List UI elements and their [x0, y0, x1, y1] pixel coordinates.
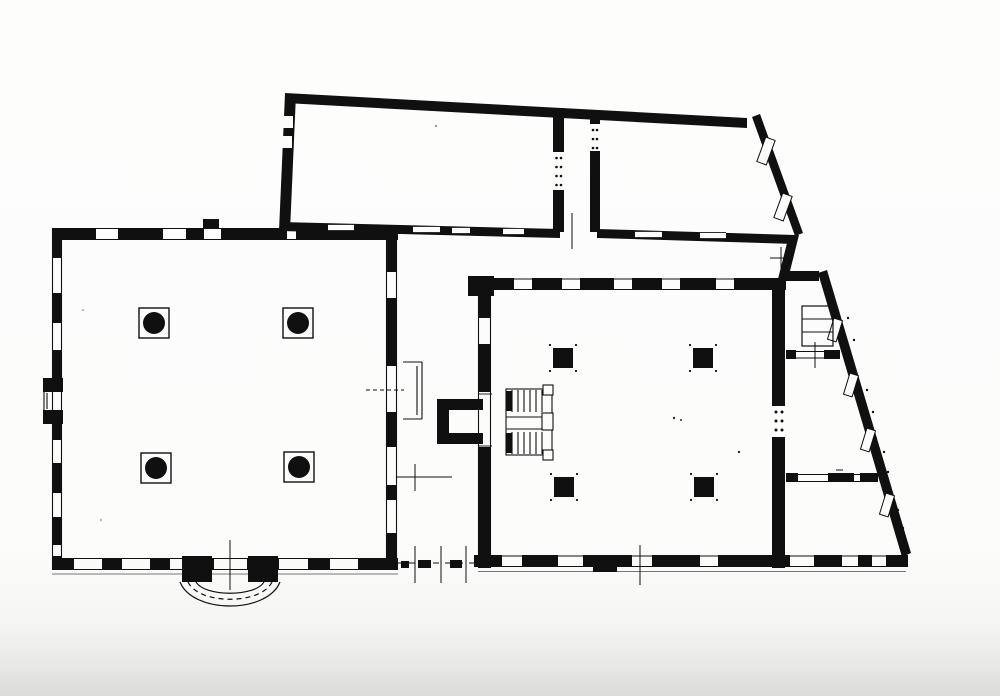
entrance-steps	[180, 540, 280, 606]
south-passage	[397, 546, 478, 583]
floor-plan-canvas	[0, 0, 1000, 696]
floor-plan-page	[0, 0, 1000, 696]
mihrab-niche	[437, 399, 483, 444]
paper-artifacts	[82, 125, 740, 521]
prayer-hall-columns	[139, 308, 314, 483]
north-wing	[279, 93, 803, 279]
prayer-hall	[43, 219, 452, 574]
main-hall-columns	[549, 344, 718, 501]
interior-stair	[506, 385, 553, 460]
east-annex	[786, 270, 911, 557]
